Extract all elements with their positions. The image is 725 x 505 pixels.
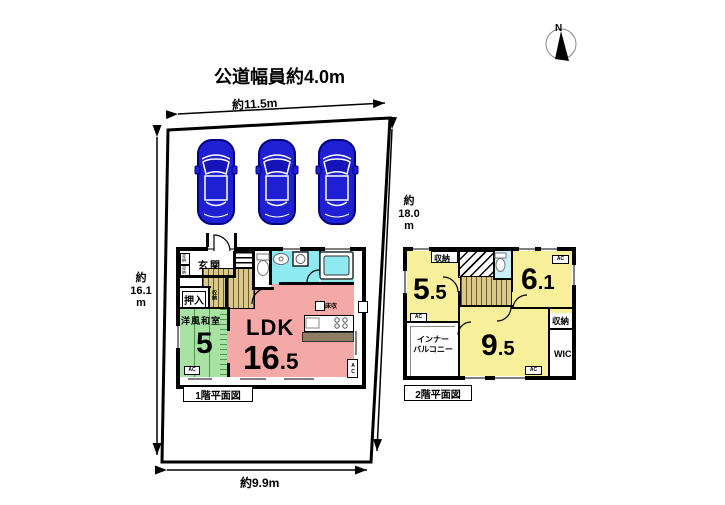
room-bathroom <box>321 251 354 284</box>
wic-label: WIC <box>554 349 572 359</box>
ac-95: AC <box>525 366 542 375</box>
floor2-caption: 2階平面図 <box>404 385 472 401</box>
oshiire-label: 押入 <box>182 291 206 308</box>
ac-washitsu: AC <box>184 366 200 375</box>
stairs-upper-2f <box>458 251 497 278</box>
room-toilet-2f <box>495 251 511 278</box>
ldk-size: 16.5 <box>243 339 298 377</box>
ldk-label: LDK <box>246 315 294 341</box>
floor1-plan: 玄関 収納 収納 押入 収納 洋風和室 5 AC LDK 16.5 <box>176 247 366 389</box>
room-55-size: 5.5 <box>413 273 447 307</box>
car-2 <box>256 140 298 224</box>
room-washroom <box>271 251 319 284</box>
dimension-bottom-label: 約9.9m <box>240 474 279 491</box>
room-61-size: 6.1 <box>521 263 555 297</box>
closet-right-label: 収納 <box>552 315 569 327</box>
compass-needle <box>555 31 569 61</box>
floor-storage-label: 床収 <box>325 301 337 310</box>
kitchen-counter <box>304 315 354 332</box>
car-1 <box>195 140 237 224</box>
stairs-2f <box>460 276 512 307</box>
floorplan-canvas: 公道幅員約4.0m N 約11.5m 約 16.1 m 約 18.0 m 約9.… <box>0 0 725 505</box>
ac-ldk: AC <box>347 359 358 378</box>
washitsu-size: 5 <box>196 327 213 361</box>
room-95-size: 9.5 <box>481 329 515 363</box>
inner-balcony-label: インナー バルコニー <box>410 335 456 356</box>
back-door-step <box>358 301 368 313</box>
shoe-storage-1: 収納 <box>180 253 190 265</box>
dimension-top-label: 約11.5m <box>232 94 278 113</box>
stair-closet-label: 収納 <box>211 290 218 300</box>
closet-55-label: 収納 <box>434 253 450 264</box>
compass-north-label: N <box>555 23 562 34</box>
floor1-caption: 1階平面図 <box>183 386 253 402</box>
floor2-plan: 収納 5.5 AC 6.1 AC 9.5 AC 収納 WIC インナー バルコニ… <box>403 247 576 380</box>
floor-storage-hatch <box>315 301 325 311</box>
ac-61: AC <box>552 255 569 264</box>
dimension-right-label: 約 18.0 m <box>394 195 424 233</box>
dimension-left-label: 約 16.1 m <box>126 272 156 310</box>
dimension-arrow-top <box>178 103 385 114</box>
kitchen-bar-counter <box>302 332 354 342</box>
washitsu-label: 洋風和室 <box>181 314 221 327</box>
road-width-title: 公道幅員約4.0m <box>214 63 345 89</box>
dimension-arrow-right <box>377 129 392 451</box>
car-3 <box>316 140 358 224</box>
